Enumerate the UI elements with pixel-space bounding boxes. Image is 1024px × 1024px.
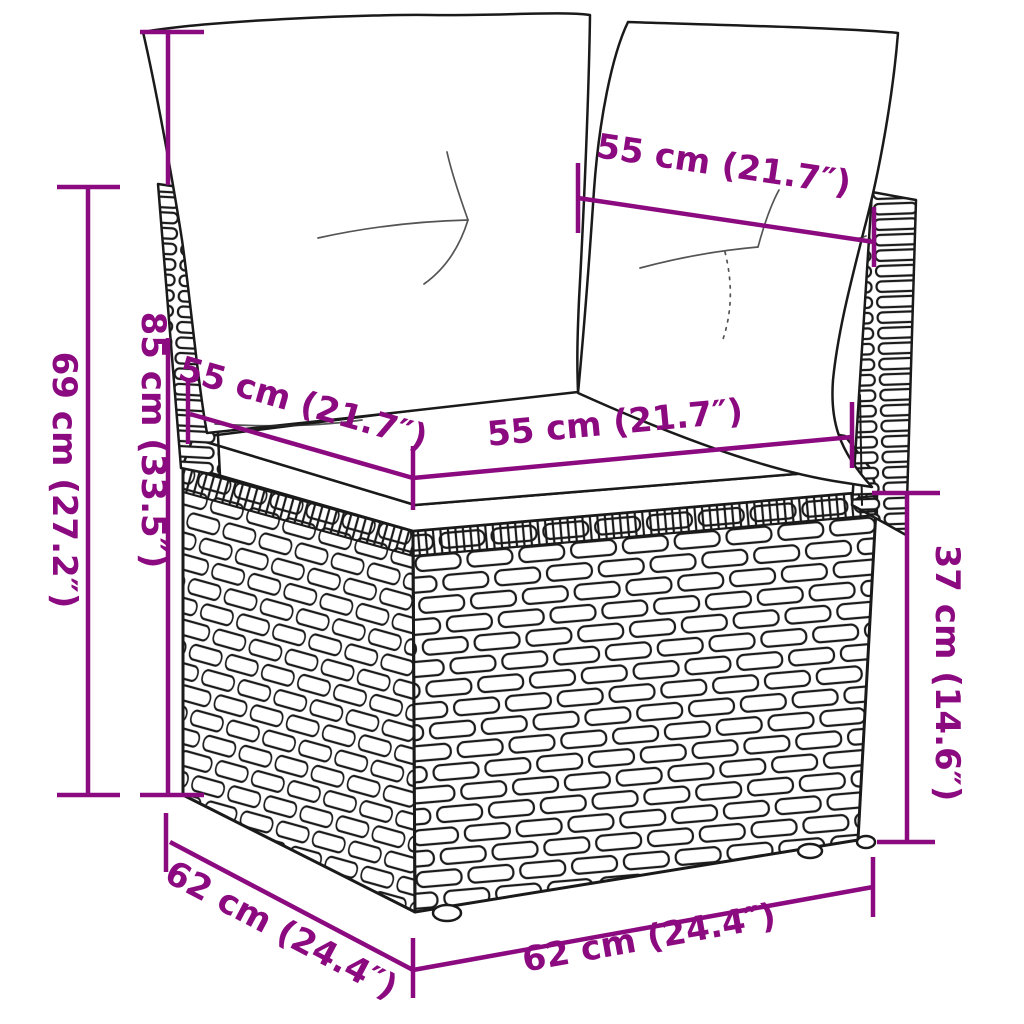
sofa-foot [433,905,461,921]
dim-label-base-width: 62 cm (24.4″) [519,896,779,981]
dim-label-seat-height: 37 cm (14.6″) [927,545,967,802]
sofa-foot [798,844,822,858]
dimension-diagram: 55 cm (21.7″) 85 cm (33.5″) 69 cm (27.2″… [0,0,1024,1024]
sofa-diagram-svg: 55 cm (21.7″) 85 cm (33.5″) 69 cm (27.2″… [0,0,1024,1024]
sofa-foot [857,836,875,848]
dim-label-total-height: 85 cm (33.5″) [133,312,173,569]
dim-label-backrest-height: 69 cm (27.2″) [44,352,84,609]
